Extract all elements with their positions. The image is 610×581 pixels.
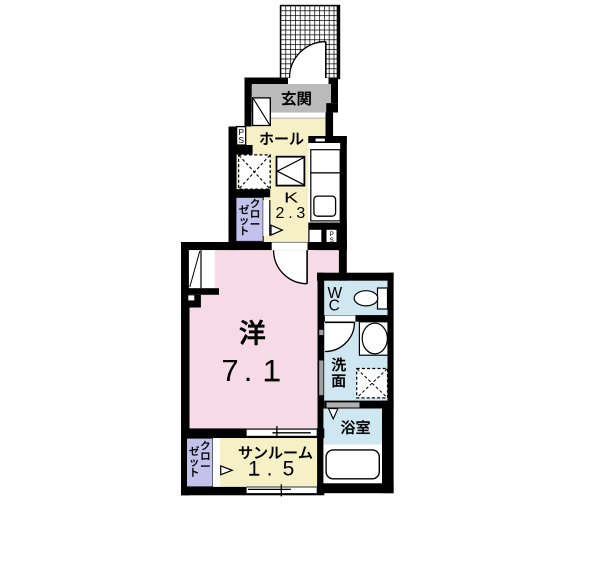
svg-text:7: 7 <box>221 353 238 388</box>
svg-text:1: 1 <box>263 353 280 388</box>
svg-text:.: . <box>288 205 292 222</box>
svg-text:2: 2 <box>276 205 285 222</box>
svg-text:S: S <box>238 135 244 145</box>
svg-text:.: . <box>267 458 273 481</box>
svg-text:C: C <box>329 297 340 314</box>
svg-text:.: . <box>244 353 253 388</box>
svg-text:5: 5 <box>283 458 295 481</box>
svg-text:1: 1 <box>248 458 260 481</box>
svg-text:3: 3 <box>296 205 305 222</box>
